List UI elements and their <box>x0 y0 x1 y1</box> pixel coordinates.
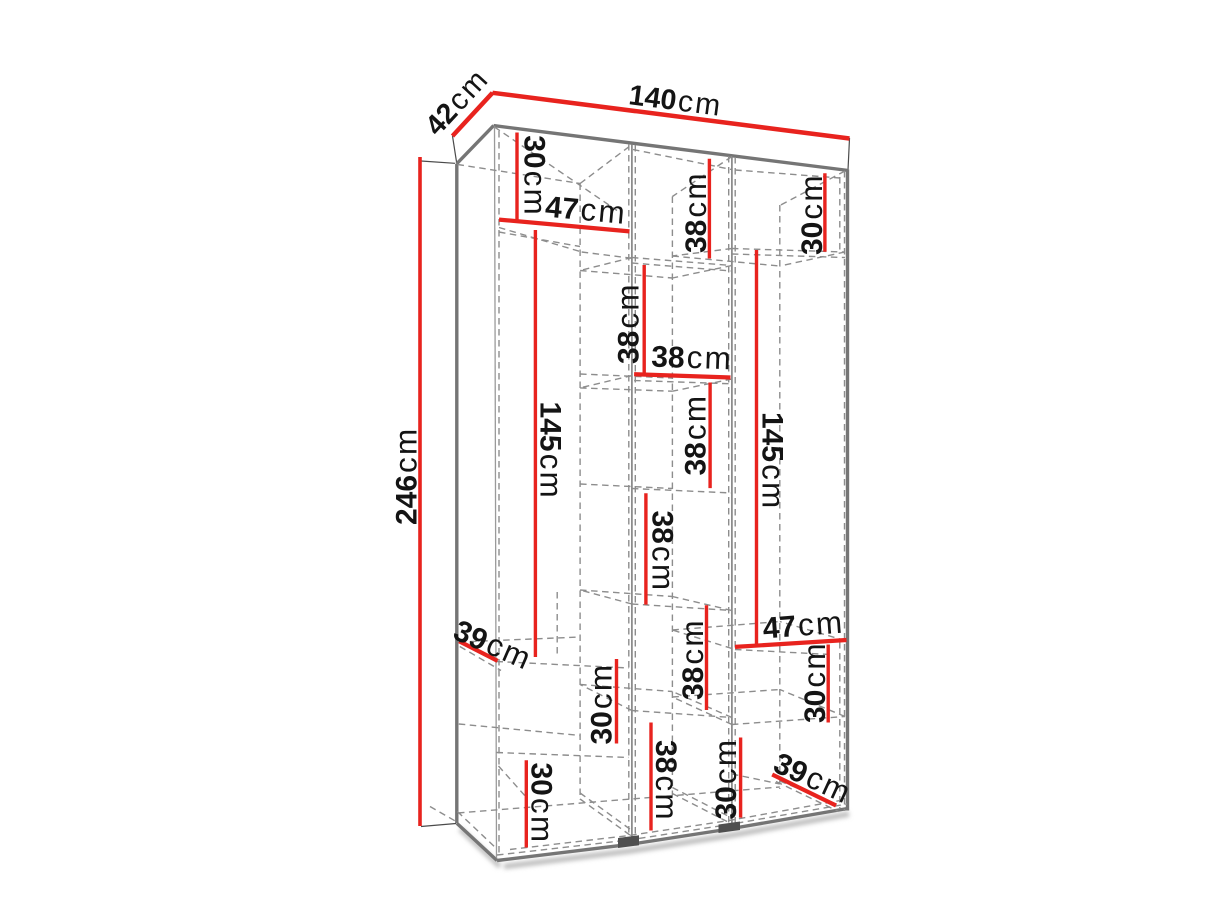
svg-text:145cm: 145cm <box>534 402 570 500</box>
svg-text:30cm: 30cm <box>525 763 561 845</box>
svg-text:38cm: 38cm <box>649 740 685 822</box>
svg-text:30cm: 30cm <box>793 173 829 255</box>
svg-text:38cm: 38cm <box>651 338 734 377</box>
svg-text:38cm: 38cm <box>677 394 713 476</box>
svg-text:47cm: 47cm <box>544 188 629 231</box>
svg-text:30cm: 30cm <box>583 663 619 745</box>
svg-text:38cm: 38cm <box>610 282 646 364</box>
svg-text:30cm: 30cm <box>796 641 832 723</box>
svg-text:30cm: 30cm <box>707 738 743 820</box>
svg-text:145cm: 145cm <box>756 412 792 510</box>
svg-text:38cm: 38cm <box>677 171 713 253</box>
svg-text:38cm: 38cm <box>674 618 710 700</box>
svg-text:246cm: 246cm <box>388 427 424 525</box>
svg-text:38cm: 38cm <box>646 511 682 593</box>
